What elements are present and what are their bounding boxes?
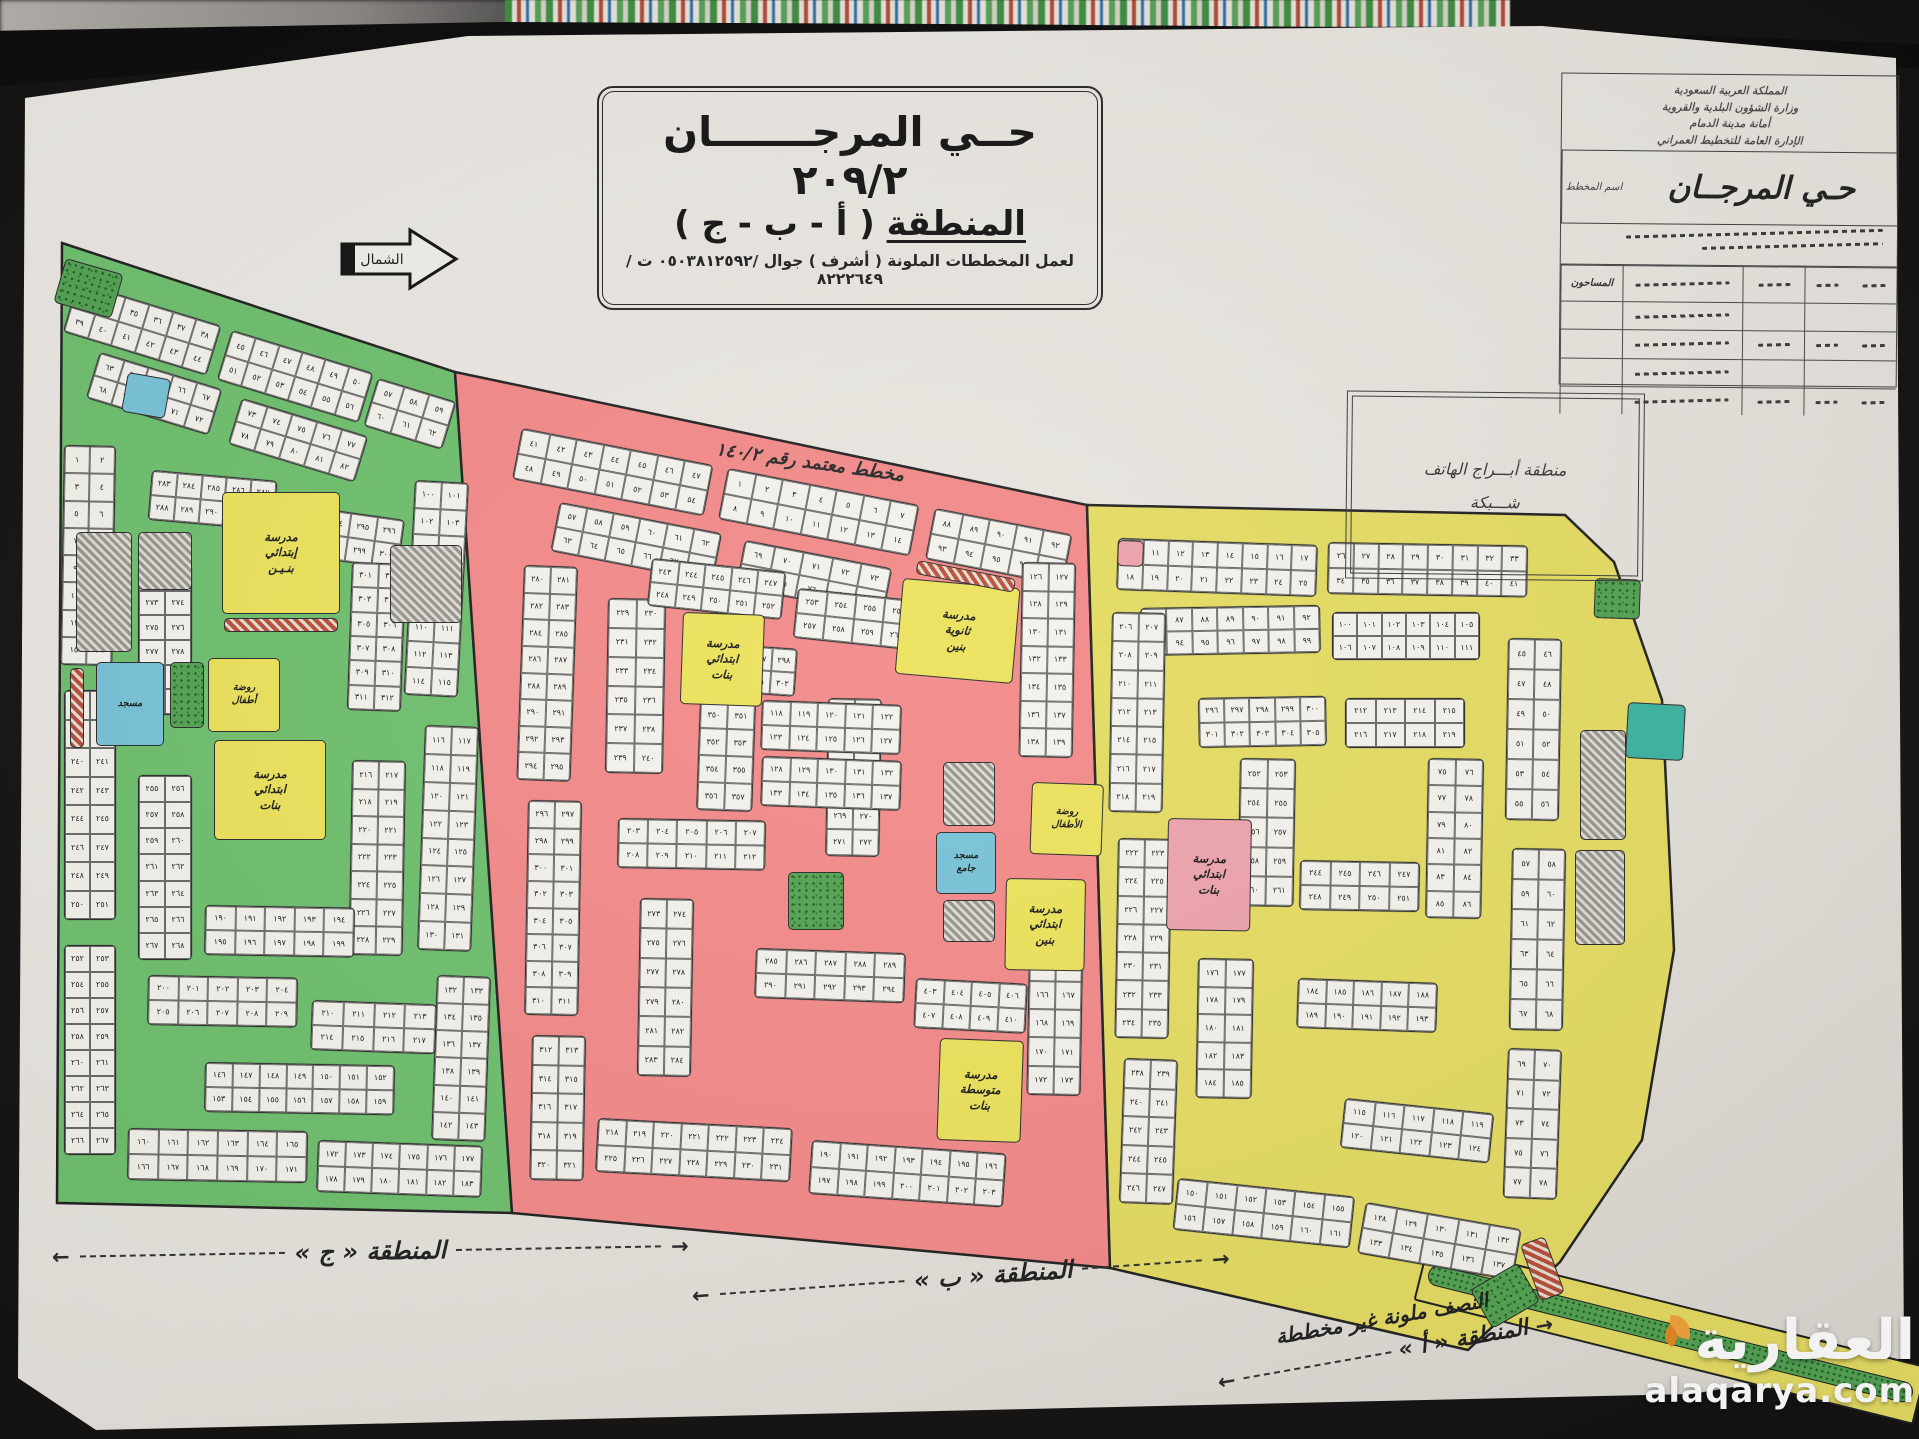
- plot-cell: ١٦٢: [188, 1130, 218, 1156]
- plot-cell: ٢٥١: [90, 891, 115, 920]
- feature-hatch-gray: [1580, 730, 1626, 840]
- plot-cell: ٢٨٠: [524, 566, 551, 594]
- plot-cell: ٢٦٥: [90, 1102, 115, 1128]
- plot-cell: ٢١٩: [625, 1120, 654, 1147]
- arrow-left-icon: ←: [52, 1245, 70, 1269]
- plot-cell: ٨٢: [1454, 838, 1481, 865]
- plot-block: ٢٠٦٢٠٧٢٠٨٢٠٩٢١٠٢١١٢١٢٢١٣٢١٤٢١٥٢١٦٢١٧٢١٨٢…: [1109, 612, 1166, 813]
- plot-cell: ٢٠٧: [207, 1001, 237, 1026]
- plot-cell: ٤٨: [1534, 669, 1561, 699]
- plot-cell: ٢٤٩: [90, 862, 115, 891]
- plot-cell: ٢٨٧: [547, 647, 574, 675]
- plot-cell: ٢٠٥: [148, 1000, 178, 1025]
- plot-cell: ٢١٦: [1110, 754, 1136, 783]
- plot-cell: ٥: [64, 501, 89, 529]
- plot-cell: ١٠٣: [439, 509, 466, 537]
- plot-cell: ٧٥: [1505, 1138, 1532, 1168]
- surveyors-table-cell: [1622, 358, 1742, 387]
- plot-cell: ١٢١: [449, 783, 476, 812]
- feature-label: مدرسة ثانوية بنين: [939, 606, 976, 655]
- plot-cell: ١٧٩: [1225, 987, 1252, 1015]
- plot-cell: ٢: [90, 446, 115, 474]
- plot-cell: ٢٠٥: [677, 820, 707, 845]
- plot-cell: ١٣٢: [872, 761, 900, 786]
- plot-cell: ١٦٧: [1055, 981, 1081, 1010]
- plot-cell: ٣٥٣: [726, 729, 754, 757]
- feature-school-pink: مدرسة ابتدائي بنات: [1166, 818, 1252, 931]
- plot-cell: ١٣٤: [1021, 673, 1047, 701]
- plot-cell: ٢١٨: [352, 789, 378, 817]
- feature-hatch-gray: [390, 545, 462, 623]
- plot-cell: ١٦٠: [129, 1129, 159, 1155]
- plot-cell: ٢٥٩: [139, 828, 165, 854]
- plot-cell: ٢٦١: [90, 1050, 115, 1076]
- plot-cell: ١٥٩: [366, 1090, 393, 1114]
- plot-cell: ١٠٥: [1455, 613, 1479, 636]
- plot-block: ٢٨٠٢٨١٢٨٢٢٨٣٢٨٤٢٨٥٢٨٦٢٨٧٢٨٨٢٨٩٢٩٠٢٩١٢٩٢٢…: [516, 565, 577, 782]
- plot-cell: ١٨: [1117, 564, 1143, 590]
- plot-cell: ٢٨٢: [523, 593, 550, 621]
- feature-mosque-teal: [1625, 702, 1686, 761]
- plot-cell: ٢١٦: [1346, 723, 1376, 747]
- handwritten-entry: [1636, 281, 1730, 286]
- plot-cell: ١٧٨: [317, 1166, 345, 1192]
- plot-cell: ١٨٤: [1197, 1069, 1224, 1097]
- plot-cell: ١٧٢: [318, 1141, 346, 1167]
- plot-cell: ١١: [1143, 540, 1169, 566]
- plot-cell: ١١٥: [1343, 1099, 1375, 1126]
- plot-cell: ٢٤٤: [677, 562, 706, 588]
- plot-cell: ٢٣٥: [607, 686, 635, 715]
- plot-cell: ٢٧٨: [665, 958, 692, 988]
- plot-cell: ٢٩٣: [544, 727, 571, 755]
- surveyors-table-cell: [1804, 331, 1850, 360]
- plot-cell: ٢٥٥: [854, 595, 885, 622]
- plot-cell: ٢٢١: [378, 817, 404, 845]
- plot-cell: ١١٩: [1461, 1111, 1493, 1138]
- plot-cell: ٢١٠: [677, 844, 707, 869]
- plot-cell: ١٩٤: [324, 908, 354, 933]
- feature-mosque: مسجد: [96, 662, 164, 746]
- plot-cell: ٦٧: [1510, 999, 1537, 1029]
- plot-cell: ١٢٧: [446, 866, 473, 895]
- plot-cell: ٣٠٩: [349, 660, 376, 685]
- plot-cell: ١٣١: [1048, 619, 1074, 647]
- feature-hatch-gray: [943, 900, 995, 942]
- plot-cell: ٣١٢: [374, 686, 401, 711]
- plot-cell: ٢٤٥: [1330, 862, 1360, 887]
- plot-cell: ١٠٠: [415, 481, 442, 509]
- plot-cell: ٦٨: [1536, 999, 1563, 1029]
- plot-cell: ٢٣١: [761, 1154, 790, 1181]
- plot-cell: ٢٢٤: [1118, 867, 1144, 896]
- plot-cell: ١٣٢: [437, 976, 464, 1004]
- plot-cell: ٢١٣: [404, 1004, 436, 1029]
- feature-school-pink: [1117, 540, 1144, 567]
- plot-cell: ٢٦٢: [65, 1076, 90, 1102]
- dashed-extent-line: [80, 1252, 285, 1258]
- feature-label: مدرسة ابتدائي بنات: [1192, 851, 1226, 898]
- arrow-left-icon: ←: [1216, 1367, 1238, 1394]
- plot-block: ٢١٦٢١٧٢١٨٢١٩٢٢٠٢٢١٢٢٢٢٢٣٢٢٤٢٢٥٢٢٦٢٢٧٢٢٨٢…: [349, 760, 406, 956]
- plot-cell: ٣٠٥: [1300, 721, 1326, 745]
- plot-cell: ٢٧٧: [139, 640, 165, 665]
- plot-cell: ١٥٣: [1264, 1188, 1296, 1216]
- plot-cell: ١١٩: [790, 702, 818, 727]
- plot-cell: ٢١٩: [378, 789, 404, 817]
- plot-cell: ٢٥٨: [65, 1024, 90, 1050]
- plot-cell: ١٠٢: [1382, 613, 1406, 636]
- plot-cell: ٢١٢: [735, 845, 765, 870]
- plan-subtitle: المنطقة ( أ - ب - ج ): [674, 204, 1026, 244]
- plot-cell: ٧٤: [1532, 1109, 1559, 1139]
- plot-cell: ٢٤٥: [703, 565, 732, 591]
- plot-cell: ١٥٣: [205, 1087, 232, 1111]
- plot-cell: ٢٨٤: [176, 473, 203, 499]
- plot-cell: ٩٢: [1294, 606, 1320, 629]
- plot-cell: ١٥٧: [1203, 1207, 1235, 1235]
- plot-cell: ٢٣٠: [734, 1152, 763, 1179]
- plot-cell: ٢٤٩: [675, 585, 704, 611]
- plot-cell: ٣٠٨: [526, 961, 552, 988]
- plot-cell: ٢٠٢: [208, 977, 238, 1002]
- plot-cell: ٣١٧: [557, 1094, 583, 1123]
- plot-cell: ٢٠٣: [619, 819, 649, 844]
- plot-cell: ٢٥٢: [1240, 759, 1268, 789]
- feature-label: مدرسة متوسطة بنات: [959, 1066, 1001, 1114]
- plot-cell: ٤٥: [1508, 639, 1535, 669]
- feature-school: مدرسة ابتدائي بنات: [214, 740, 326, 840]
- plot-block: ١٧٦١٧٧١٧٨١٧٩١٨٠١٨١١٨٢١٨٣١٨٤١٨٥: [1196, 958, 1254, 1099]
- plot-cell: ١٨١: [1225, 1015, 1252, 1043]
- plot-cell: ١١٩: [450, 755, 477, 784]
- feature-hatch-gray: [138, 532, 192, 590]
- plot-cell: ٦٥: [1510, 969, 1537, 999]
- plot-cell: ٢٣٠: [1117, 952, 1143, 981]
- plot-cell: ١٩: [1142, 565, 1168, 591]
- plot-cell: ٢٢٧: [376, 899, 402, 927]
- plot-cell: ٢٢٤: [351, 871, 377, 899]
- plot-cell: ٢١١: [1137, 670, 1163, 699]
- plot-cell: ١٥٨: [1232, 1210, 1264, 1238]
- plot-cell: ١١٦: [425, 726, 452, 755]
- plot-cell: ١٣: [1192, 542, 1218, 568]
- plot-cell: ١٢٦: [420, 865, 447, 894]
- plot-cell: ٩١: [1268, 606, 1294, 629]
- plot-cell: ١٧٦: [427, 1145, 455, 1171]
- authority-title-block: المملكة العربية السعوديةوزارة الشؤون الب…: [1559, 73, 1900, 388]
- plot-cell: ٢٥٥: [90, 972, 115, 998]
- plot-cell: ٣١١: [348, 685, 375, 710]
- plot-cell: ٣١٤: [532, 1065, 558, 1094]
- plot-cell: ١٩٦: [976, 1153, 1005, 1181]
- plot-cell: ٢١٩: [1435, 723, 1465, 747]
- plot-cell: ٢٦٠: [165, 828, 191, 854]
- plot-cell: ٥٣: [1506, 759, 1533, 789]
- plot-cell: ١٣٣: [1358, 1228, 1393, 1258]
- plot-cell: ١٢٨: [1022, 591, 1048, 619]
- dashed-extent-line: [456, 1245, 661, 1251]
- plot-cell: ٩٩: [1294, 629, 1320, 652]
- plot-cell: ٢٤٣: [650, 559, 679, 585]
- plot-cell: ١٢٠: [423, 782, 450, 811]
- plot-cell: ١٦٩: [217, 1156, 247, 1182]
- plot-cell: ١٩٢: [265, 907, 295, 932]
- plot-cell: ١٣٨: [434, 1057, 461, 1085]
- plot-cell: ٢٢٠: [352, 816, 378, 844]
- plot-cell: ١٩٥: [205, 930, 235, 955]
- plot-cell: ١٩٢: [866, 1145, 895, 1173]
- plot-cell: ٢٥٦: [165, 776, 191, 802]
- plot-cell: ٢٨٠: [665, 987, 692, 1017]
- plot-block: ١٢٨١٢٩١٣٠١٣١١٣٢١٣٣١٣٤١٣٥١٣٦١٣٧: [760, 756, 902, 811]
- plot-cell: ١١٧: [1402, 1105, 1434, 1132]
- plot-cell: ١٣٧: [461, 1031, 488, 1059]
- plot-cell: ١٠١: [441, 482, 468, 510]
- plot-cell: ١٠٠: [1333, 613, 1357, 636]
- plot-cell: ٤٠٧: [914, 1003, 943, 1028]
- plot-cell: ٢٤٣: [90, 777, 115, 806]
- plot-cell: ١١٤: [405, 667, 432, 695]
- plot-cell: ٣١٥: [558, 1065, 584, 1094]
- plot-cell: ٢٤٦: [730, 567, 759, 593]
- plot-cell: ١٥٤: [1293, 1191, 1325, 1219]
- plot-cell: ٤٠٩: [969, 1006, 998, 1031]
- plot-cell: ٧٦: [1531, 1139, 1558, 1169]
- surveyors-table-cell: [1560, 301, 1622, 330]
- plot-cell: ٢٥٤: [65, 972, 90, 998]
- feature-school: مدرسة ثانوية بنين: [895, 578, 1021, 684]
- surveyors-table-cell: [1804, 359, 1850, 388]
- surveyors-table-cell: [1742, 331, 1804, 360]
- plot-block: ٣١٢٣١٣٣١٤٣١٥٣١٦٣١٧٣١٨٣١٩٣٢٠٣٢١: [529, 1035, 586, 1181]
- plot-cell: ٦٢: [1537, 909, 1564, 939]
- plot-cell: ٣: [64, 473, 89, 501]
- plot-block: ٢١٢٢١٣٢١٤٢١٥٢١٦٢١٧٢١٨٢١٩: [1345, 698, 1465, 748]
- plot-cell: ١٥٦: [286, 1088, 313, 1112]
- plot-cell: ٢٣٩: [1150, 1060, 1177, 1089]
- plot-cell: ١١٨: [424, 754, 451, 783]
- plot-cell: ٥٤: [1532, 759, 1559, 789]
- plot-cell: ٢٨٧: [815, 951, 845, 976]
- plot-cell: ١٠٩: [1406, 636, 1430, 659]
- plot-cell: ١٩٥: [949, 1151, 978, 1179]
- plot-cell: ٢٤٤: [1121, 1145, 1148, 1174]
- plot-cell: ١١٨: [762, 701, 790, 726]
- plot-cell: ٢٥٩: [852, 619, 883, 646]
- plot-cell: ٢٥٠: [701, 588, 730, 614]
- plot-cell: ١٩٧: [264, 931, 294, 956]
- plot-cell: ٢٥٩: [90, 1024, 115, 1050]
- plot-cell: ٣٠٣: [351, 587, 378, 612]
- plot-cell: ٣١٩: [557, 1122, 583, 1151]
- surveyors-table-cell: [1622, 301, 1742, 330]
- handwritten-entry: [1816, 344, 1838, 348]
- plot-cell: ١٧: [1291, 545, 1317, 571]
- plot-cell: ٧٥: [1429, 759, 1456, 786]
- plot-cell: ٢٥١: [727, 590, 756, 616]
- plot-cell: ١٨٢: [1197, 1042, 1224, 1070]
- plot-cell: ٣٠٧: [552, 935, 578, 962]
- plot-cell: ٢٣٤: [1116, 1009, 1142, 1038]
- plot-cell: ٧٨: [1530, 1168, 1557, 1198]
- plot-cell: ٢٢٨: [679, 1149, 708, 1176]
- plot-cell: ١٢٢: [872, 705, 900, 730]
- north-label: الشمال: [360, 252, 403, 268]
- plot-cell: ١٣٠: [1022, 618, 1048, 646]
- plot-cell: ٢٧٢: [852, 829, 878, 855]
- plot-cell: ٢٠: [1167, 566, 1193, 592]
- plot-cell: ٤: [89, 474, 114, 502]
- plot-cell: ١٧٧: [454, 1146, 482, 1172]
- plot-cell: ٢٦٧: [90, 1128, 115, 1154]
- plot-cell: ٢٠٦: [1112, 613, 1138, 642]
- plot-cell: ٢٠٤: [648, 820, 678, 845]
- plot-cell: ٢٠٠: [149, 976, 179, 1001]
- plot-cell: ١٨٢: [426, 1170, 454, 1196]
- plot-cell: ٢٥٣: [90, 946, 115, 972]
- surveyors-table-cell: [1622, 265, 1742, 302]
- plot-cell: ١٧٥: [400, 1144, 428, 1170]
- plot-cell: ٢٣: [1241, 568, 1267, 594]
- plot-cell: ٥٦: [1532, 789, 1559, 819]
- plot-cell: ٢١: [1191, 567, 1217, 593]
- plot-cell: ٢٧٥: [139, 615, 165, 640]
- plot-cell: ١٥٩: [1261, 1213, 1293, 1241]
- plot-cell: ٢٢٢: [708, 1125, 737, 1152]
- plot-cell: ٤٧: [1508, 669, 1535, 699]
- plot-cell: ٢٥٧: [90, 998, 115, 1024]
- plot-cell: ١٢٥: [447, 838, 474, 867]
- plot-cell: ١١٠: [1430, 636, 1454, 659]
- plot-cell: ١٢٨: [419, 893, 446, 922]
- plot-cell: ٢٣٣: [1142, 981, 1168, 1010]
- plot-cell: ٢٨٣: [638, 1046, 665, 1076]
- plot-cell: ٣٠٣: [1250, 722, 1276, 746]
- plot-block: ٢٩٦٢٩٧٢٩٨٢٩٩٣٠٠٣٠١٣٠٢٣٠٣٣٠٤٣٠٥٣٠٦٣٠٧٣٠٨٣…: [524, 800, 582, 1016]
- plot-cell: ٢٥: [1290, 570, 1316, 596]
- plot-cell: ٥٩: [1512, 879, 1539, 909]
- plot-cell: ١٣٦: [844, 784, 872, 809]
- plot-cell: ٢٧٣: [139, 591, 165, 616]
- plot-cell: ١٥٤: [232, 1087, 259, 1111]
- plot-cell: ٢٤٥: [1147, 1146, 1174, 1175]
- plot-cell: ٣١٣: [558, 1036, 584, 1065]
- surveyors-table-cell: [1850, 267, 1896, 304]
- plot-cell: ٤١٠: [997, 1007, 1026, 1032]
- plot-cell: ٢٨١: [550, 567, 577, 595]
- plot-block: ٢٩٦٢٩٧٢٩٨٢٩٩٣٠٠٣٠١٣٠٢٣٠٣٣٠٤٣٠٥: [1198, 696, 1327, 748]
- feature-hatch-red: [224, 618, 338, 632]
- plot-cell: ١٣٧: [1046, 701, 1072, 729]
- plot-cell: ٢٥٨: [823, 616, 854, 643]
- plot-cell: ١٣٤: [1389, 1233, 1424, 1263]
- plot-block: ١٣٢١٣٣١٣٤١٣٥١٣٦١٣٧١٣٨١٣٩١٤٠١٤١١٤٢١٤٣: [431, 975, 491, 1142]
- plot-cell: ١٣٥: [1420, 1239, 1455, 1269]
- plot-cell: ١٢٧: [1048, 563, 1074, 591]
- plot-cell: ٣٥٧: [724, 783, 752, 811]
- plot-cell: ٢٩٠: [755, 973, 785, 998]
- dashed-extent-line: [1082, 1259, 1202, 1269]
- plot-cell: ٢٦٣: [90, 1076, 115, 1102]
- plot-cell: ٢٥٧: [794, 613, 825, 640]
- plot-cell: ٨٥: [1426, 891, 1453, 918]
- plot-cell: ٢٢٢: [351, 844, 377, 872]
- plot-cell: ٣١٨: [531, 1122, 557, 1151]
- plot-cell: ٧٨: [1455, 786, 1482, 813]
- plot-cell: ٢٧٥: [640, 928, 667, 958]
- plot-cell: ٢٦٤: [65, 1102, 90, 1128]
- surveyors-table-cell: [1742, 359, 1804, 388]
- plot-cell: ١٥٧: [313, 1089, 340, 1113]
- plot-cell: ١١٢: [406, 641, 433, 669]
- plot-cell: ١٩١: [839, 1143, 868, 1171]
- plot-cell: ٢٤١: [90, 748, 115, 777]
- plot-cell: ٩٥: [1192, 631, 1218, 654]
- plot-cell: ٨٦: [1453, 891, 1480, 918]
- plot-cell: ١٦٥: [277, 1132, 307, 1158]
- plot-cell: ١٨٦: [1353, 981, 1381, 1006]
- plot-cell: ٢٢١: [680, 1123, 709, 1150]
- plot-cell: ١٣٣: [1047, 646, 1073, 674]
- plot-cell: ٢٩٧: [555, 801, 581, 828]
- plot-cell: ١٧٨: [1198, 987, 1225, 1015]
- plot-cell: ٢٤٠: [634, 744, 662, 773]
- plot-cell: ١٠٣: [1406, 613, 1430, 636]
- plot-cell: ٣٢١: [556, 1151, 582, 1180]
- feature-hatch-gray: [943, 762, 995, 826]
- plot-cell: ٢٢: [1216, 567, 1242, 593]
- feature-label: روضة أطفال: [232, 682, 257, 708]
- feature-label: مدرسة ابتدائي بنين: [1028, 901, 1062, 948]
- plot-cell: ١٢٤: [789, 726, 817, 751]
- plot-cell: ٢٨٩: [874, 953, 904, 978]
- plot-cell: ٢٨٦: [521, 646, 548, 674]
- plot-cell: ٢٠٦: [178, 1001, 208, 1026]
- plot-cell: ٢٣٥: [1142, 1009, 1168, 1038]
- plot-cell: ٩٧: [1243, 630, 1269, 653]
- plot-cell: ٢٦٧: [139, 933, 165, 959]
- plot-cell: ١٨٥: [1326, 980, 1354, 1005]
- plot-cell: ٦٩: [1508, 1049, 1535, 1079]
- plot-cell: ٢٠٧: [1138, 613, 1164, 642]
- plot-cell: ١٨٣: [453, 1171, 481, 1197]
- plot-cell: ٢١٤: [1405, 699, 1435, 723]
- plot-cell: ٨٧: [1166, 608, 1192, 631]
- plot-cell: ٢٩١: [785, 974, 815, 999]
- plot-cell: ٢٦٣: [139, 881, 165, 907]
- plot-cell: ٢٠٣: [974, 1179, 1003, 1207]
- plot-cell: ٣٠٠: [528, 854, 554, 881]
- surveyors-table-cell: [1560, 329, 1622, 358]
- plot-cell: ٢٩٢: [518, 726, 545, 754]
- note-scribble: [1626, 229, 1883, 239]
- plot-cell: ٢٤٦: [1360, 862, 1390, 887]
- plot-cell: ٣٠٣: [553, 881, 579, 908]
- plot-cell: ١٩١: [1352, 1005, 1380, 1030]
- plot-cell: ١٣٧: [872, 785, 900, 810]
- plot-cell: ١٧٣: [345, 1142, 373, 1168]
- surveyors-table-cell: [1742, 266, 1804, 303]
- plot-cell: ٢٤٣: [1148, 1117, 1175, 1146]
- surveyors-table-cell: [1560, 357, 1622, 386]
- plot-cell: ٢٥٤: [1240, 788, 1268, 818]
- plot-cell: ٢٠٨: [237, 1002, 267, 1027]
- plot-cell: ٢٨٩: [546, 673, 573, 701]
- plot-cell: ١٤: [1217, 542, 1243, 568]
- plot-cell: ١٩٨: [294, 932, 324, 957]
- plot-cell: ١٤٢: [432, 1112, 459, 1140]
